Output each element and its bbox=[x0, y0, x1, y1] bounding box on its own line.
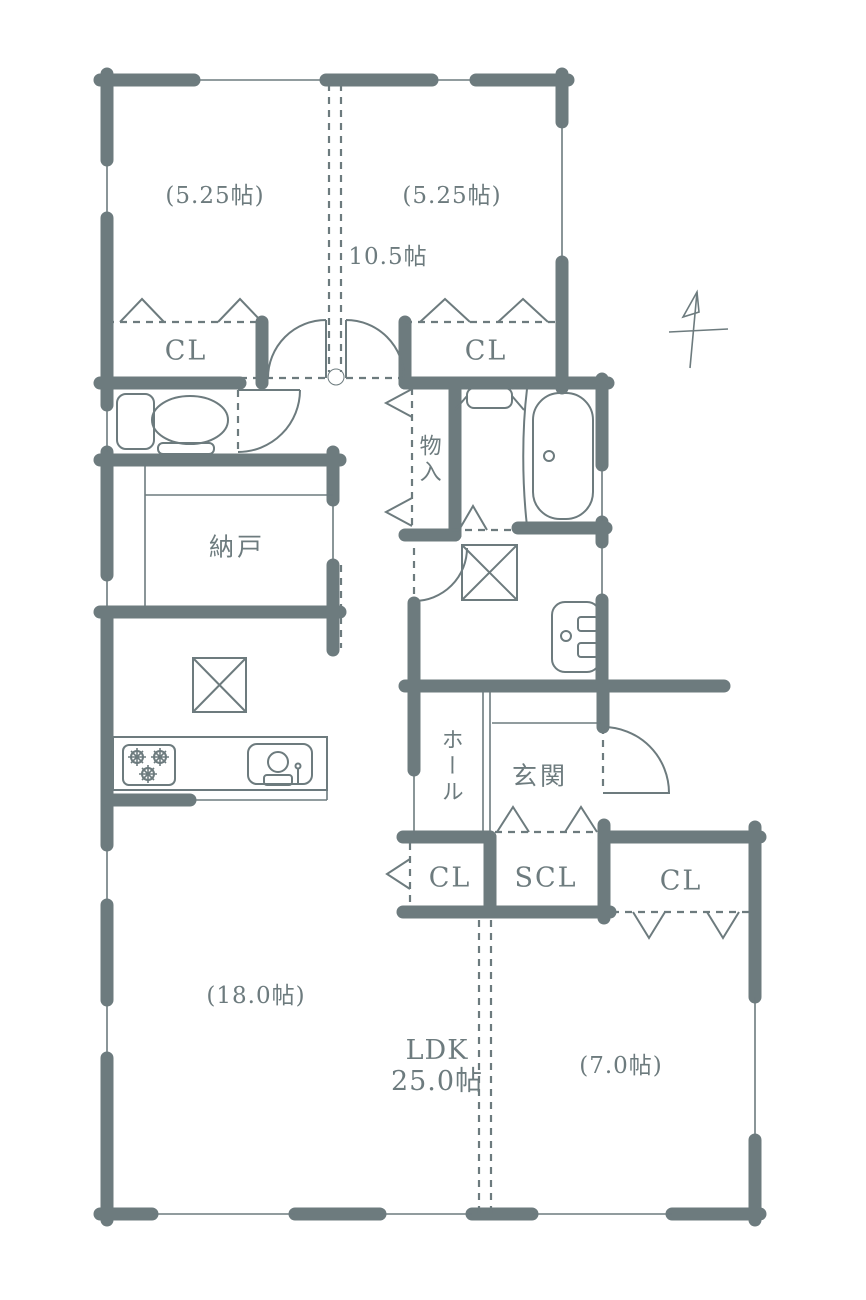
refrigerator-icon bbox=[193, 658, 246, 712]
room-label-bedroom3-closet: CL bbox=[660, 865, 703, 896]
ldk-name: LDK bbox=[391, 1035, 483, 1066]
room-label-closet-right: CL bbox=[465, 335, 508, 366]
ldk-area: 25.0帖 bbox=[391, 1066, 483, 1097]
toilet-icon bbox=[117, 394, 228, 454]
room-label-corridor-storage: 物入 bbox=[415, 434, 440, 486]
room-label-bedroom-left-area: (5.25帖) bbox=[165, 183, 264, 209]
room-label-hall: ホール bbox=[437, 728, 462, 806]
door-hinge-dot bbox=[328, 369, 344, 385]
floor-plan: (5.25帖) (5.25帖) 10.5帖 CL CL 物入 納戸 ホール 玄関… bbox=[0, 0, 866, 1300]
room-label-ldk: LDK 25.0帖 bbox=[391, 1035, 483, 1097]
bath-door-icon bbox=[467, 388, 512, 408]
north-arrow-icon bbox=[669, 292, 728, 368]
room-label-bedroom-right-area: (5.25帖) bbox=[402, 183, 501, 209]
room-label-bedrooms-combined-area: 10.5帖 bbox=[348, 244, 427, 270]
room-label-storage-room: 納戸 bbox=[209, 534, 265, 563]
room-label-hall-closet: CL bbox=[429, 862, 472, 893]
washing-machine-icon bbox=[462, 545, 517, 600]
kitchen-sink-icon bbox=[248, 744, 312, 785]
room-label-shoe-closet: SCL bbox=[514, 862, 577, 893]
room-label-closet-left: CL bbox=[165, 335, 208, 366]
washbasin-icon bbox=[552, 602, 600, 672]
kitchen-counter-icon bbox=[113, 737, 327, 800]
stove-icon bbox=[123, 745, 175, 785]
room-label-living-area: (18.0帖) bbox=[206, 983, 305, 1009]
bathtub-icon bbox=[455, 388, 593, 526]
interior-walls bbox=[100, 322, 610, 912]
room-label-entrance: 玄関 bbox=[512, 763, 568, 792]
room-label-bedroom3-area: (7.0帖) bbox=[579, 1053, 663, 1079]
